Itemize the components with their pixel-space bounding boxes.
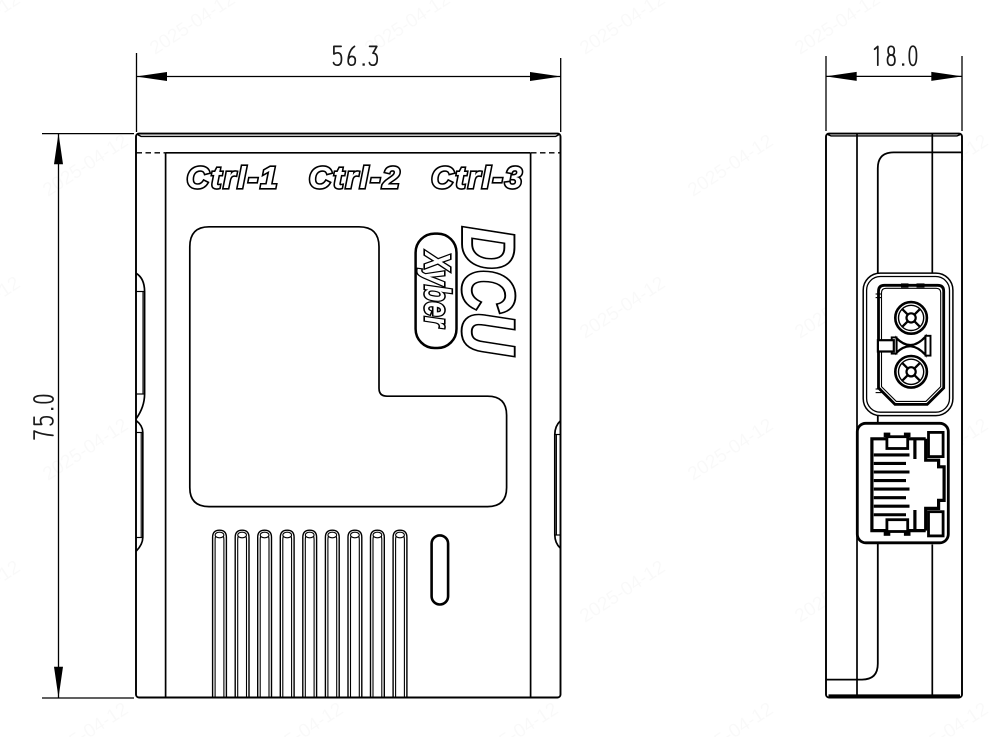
svg-text:Ctrl-3: Ctrl-3 bbox=[431, 160, 522, 195]
svg-text:Ctrl-2: Ctrl-2 bbox=[309, 160, 400, 195]
svg-text:DCU: DCU bbox=[447, 227, 528, 357]
svg-text:Ctrl-1: Ctrl-1 bbox=[187, 160, 278, 195]
